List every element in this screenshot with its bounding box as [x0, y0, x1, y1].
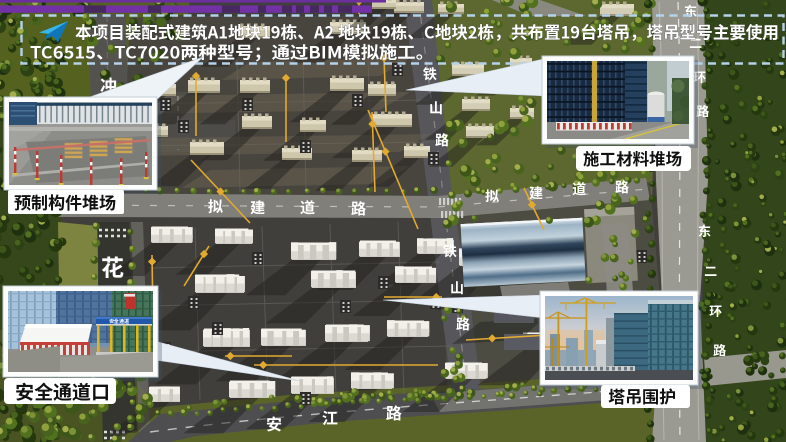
svg-text:花: 花	[101, 249, 124, 283]
svg-text:安全通道: 安全通道	[109, 318, 130, 325]
svg-text:塔吊围护: 塔吊围护	[608, 383, 676, 408]
svg-text:路: 路	[386, 400, 403, 424]
svg-text:铁: 铁	[423, 64, 437, 84]
svg-text:安: 安	[266, 411, 282, 435]
svg-text:江: 江	[322, 405, 338, 429]
svg-text:路: 路	[615, 177, 629, 197]
svg-text:路: 路	[435, 130, 449, 150]
svg-text:铁: 铁	[443, 241, 457, 261]
svg-text:路: 路	[351, 198, 366, 219]
svg-text:TC6515、TC7020两种型号；通过BIM模拟施工。: TC6515、TC7020两种型号；通过BIM模拟施工。	[30, 39, 434, 64]
svg-text:山: 山	[450, 278, 464, 298]
svg-text:山: 山	[429, 98, 443, 118]
svg-text:环: 环	[709, 301, 722, 320]
svg-text:安全通道口: 安全通道口	[15, 378, 110, 405]
svg-text:拟: 拟	[208, 196, 224, 217]
svg-text:路: 路	[456, 314, 470, 334]
svg-text:建: 建	[250, 197, 265, 218]
svg-text:道: 道	[300, 197, 315, 218]
svg-text:二: 二	[704, 261, 717, 280]
svg-text:预制构件堆场: 预制构件堆场	[14, 189, 116, 214]
svg-text:建: 建	[529, 183, 543, 203]
svg-text:东: 东	[698, 221, 711, 240]
svg-text:拟: 拟	[485, 186, 499, 206]
svg-text:东: 东	[684, 1, 697, 20]
svg-text:施工材料堆场: 施工材料堆场	[583, 146, 682, 170]
svg-text:路: 路	[713, 340, 726, 359]
svg-text:道: 道	[572, 179, 586, 199]
